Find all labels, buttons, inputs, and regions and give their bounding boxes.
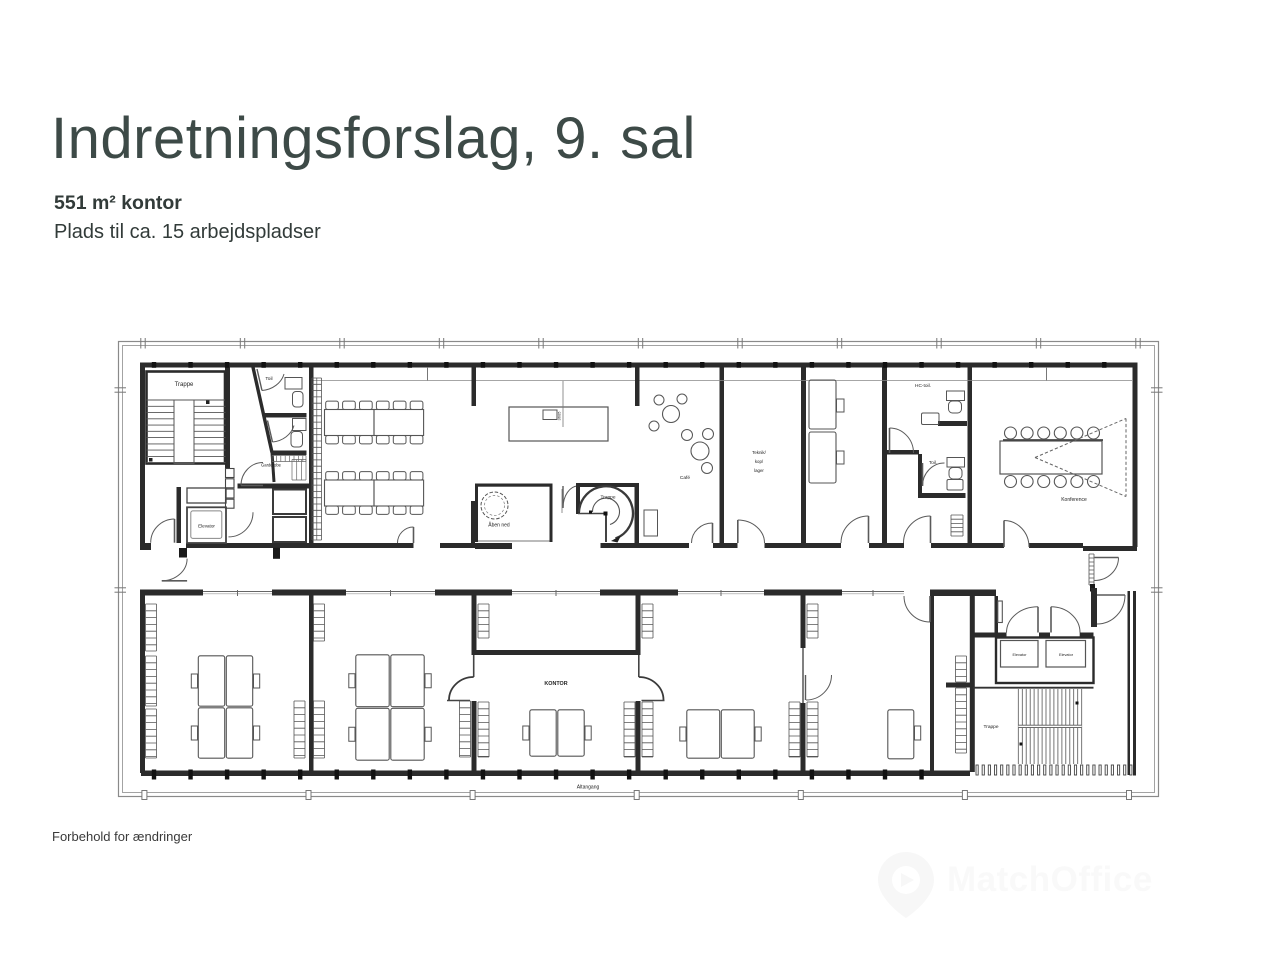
svg-text:Trappe: Trappe [175,382,194,388]
svg-text:Elevator: Elevator [198,524,215,529]
svg-text:Åben ned: Åben ned [488,522,510,529]
svg-text:Garderobe: Garderobe [261,463,282,468]
svg-text:lager: lager [754,468,764,473]
svg-text:Altangang: Altangang [577,785,600,791]
svg-text:3605: 3605 [557,411,562,421]
svg-text:Café: Café [680,475,690,481]
svg-text:Konference: Konference [1061,497,1087,503]
svg-text:KONTOR: KONTOR [544,681,567,687]
svg-text:Teknik/: Teknik/ [752,450,766,455]
svg-text:HC-toil.: HC-toil. [915,383,931,389]
svg-text:Elevator: Elevator [1059,653,1074,657]
svg-text:Elevator: Elevator [1013,653,1028,657]
svg-text:kop/: kop/ [755,459,764,464]
svg-text:Trappe: Trappe [600,495,615,501]
svg-text:Toil: Toil [265,376,272,382]
svg-text:Trappe: Trappe [983,724,998,730]
